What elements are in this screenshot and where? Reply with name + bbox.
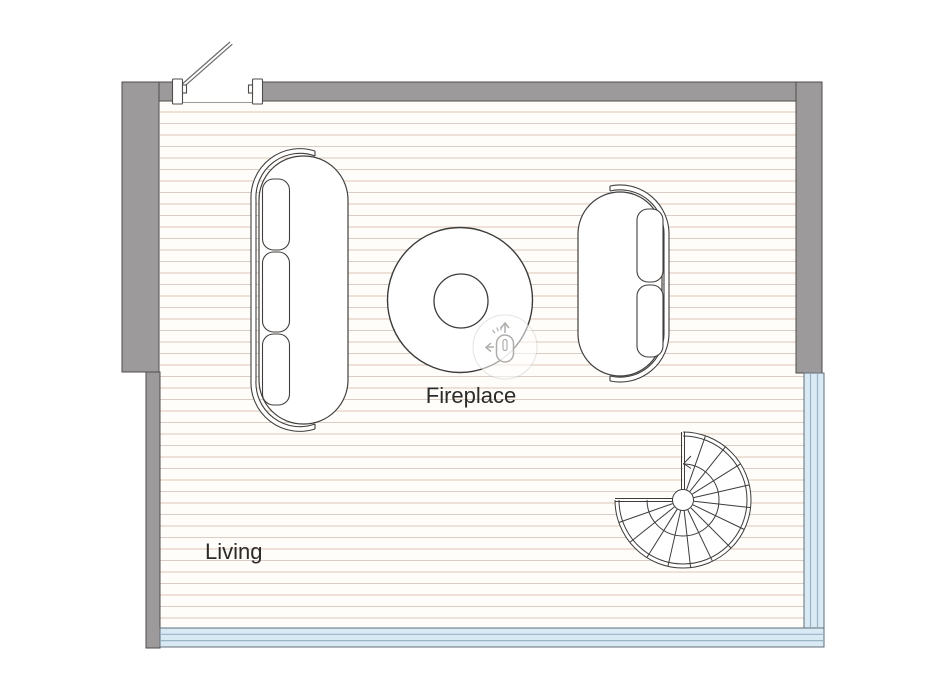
sofa-left-cushions — [263, 179, 290, 405]
wall-left-thin[interactable] — [146, 372, 160, 648]
fireplace-label: Fireplace — [419, 383, 523, 409]
floor-plan-canvas[interactable]: Fireplace Living — [0, 0, 942, 677]
door[interactable] — [173, 42, 263, 104]
mouse-pan-hint-icon — [473, 315, 537, 379]
room-label-living: Living — [205, 539, 262, 565]
window-right[interactable] — [804, 373, 824, 628]
stair-entry-edges — [615, 432, 685, 502]
spiral-staircase[interactable] — [615, 432, 751, 568]
fireplace-inner-ring — [434, 274, 488, 328]
wall-left-thick[interactable] — [122, 82, 159, 372]
sofa-left[interactable] — [251, 149, 348, 432]
door-jamb-right-stop — [249, 85, 253, 93]
wall-top-right-segment[interactable] — [262, 82, 822, 101]
stair-center-column — [673, 490, 694, 511]
door-leaf — [180, 42, 232, 88]
door-jamb-left — [173, 79, 183, 104]
floor-plan-drawing — [0, 0, 942, 677]
sofa-right[interactable] — [578, 185, 669, 382]
wall-right[interactable] — [796, 82, 822, 373]
door-jamb-right — [253, 79, 263, 104]
door-jamb-left-stop — [183, 85, 187, 93]
window-bottom[interactable] — [160, 628, 824, 647]
